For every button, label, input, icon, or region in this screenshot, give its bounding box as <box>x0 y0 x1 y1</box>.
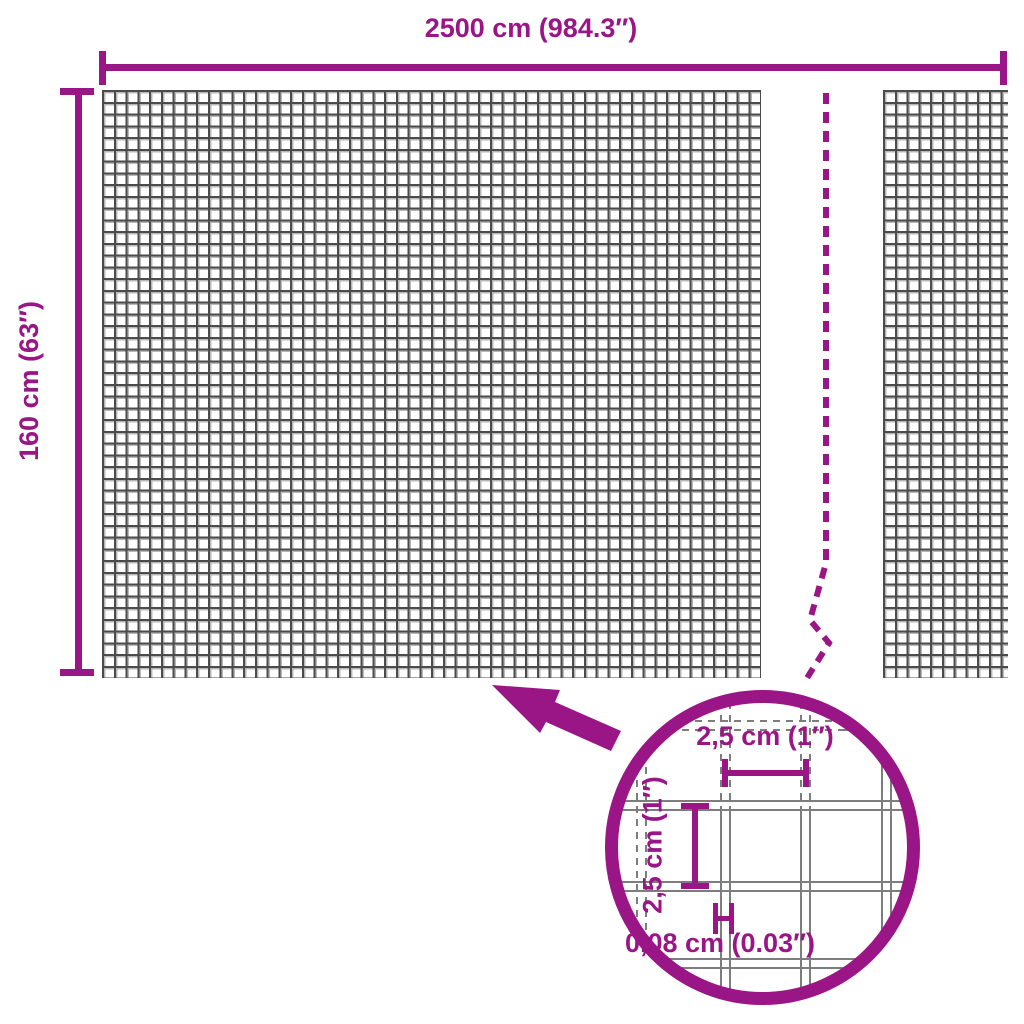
width-dimension-label: 2500 cm (984.3″) <box>102 8 960 48</box>
height-dimension-cap-bottom <box>60 669 94 676</box>
mesh-panel-main <box>102 90 761 678</box>
mesh-break-line <box>790 85 845 685</box>
mesh-cell-width-label: 2,5 cm (1″) <box>657 717 873 755</box>
width-dimension-cap-right <box>1000 51 1007 85</box>
height-dimension-label: 160 cm (63″) <box>11 297 47 465</box>
mesh-panel-right <box>883 90 1008 678</box>
mesh-cell-height-label: 2,5 cm (1″) <box>635 773 671 918</box>
width-dimension-cap-left <box>99 51 106 85</box>
product-dimension-diagram: 2500 cm (984.3″) 160 cm (63″) <box>0 0 1024 1024</box>
width-dimension-line <box>99 64 1007 71</box>
zoom-arrow-icon <box>480 670 640 770</box>
height-dimension-cap-top <box>60 88 94 95</box>
wire-thickness-label: 0,08 cm (0.03″) <box>605 924 835 962</box>
height-dimension-line <box>75 88 82 676</box>
